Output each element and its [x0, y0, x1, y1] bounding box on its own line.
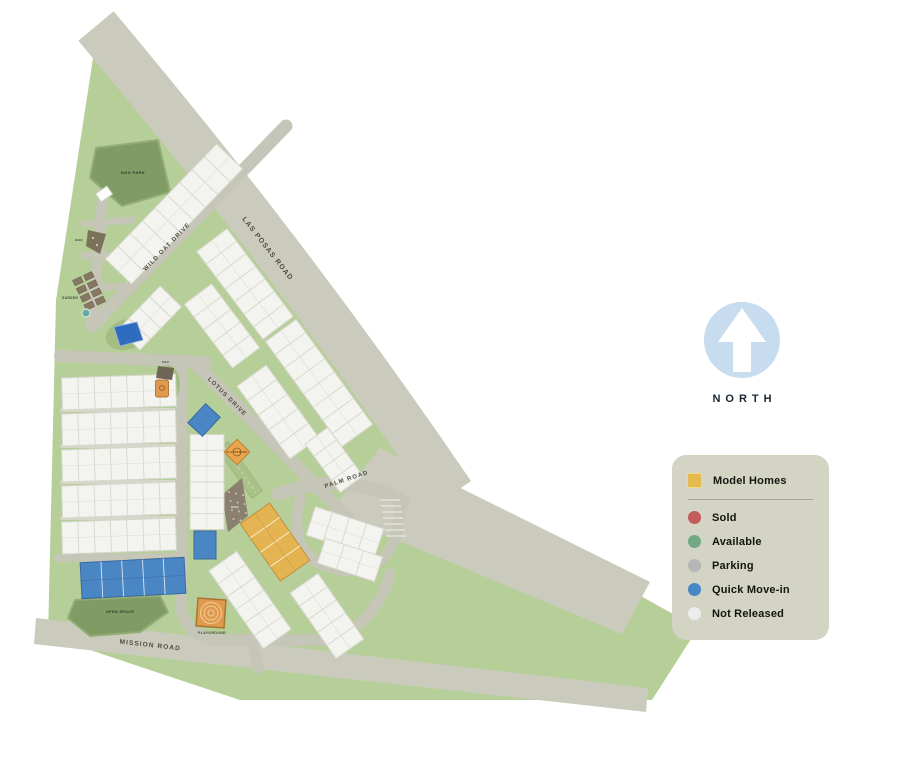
- area-label: PLAYGROUND: [198, 631, 226, 635]
- plaza-dot: [245, 512, 247, 514]
- legend-item-quick-move-in: Quick Move-in: [687, 579, 814, 600]
- plaza-dot: [233, 518, 235, 520]
- plaza-dot: [240, 520, 242, 522]
- not-released-swatch-circle-icon: [688, 607, 701, 620]
- home-building-row[interactable]: [61, 446, 176, 482]
- plaza-dot: [235, 493, 237, 495]
- plaza-dot: [237, 502, 239, 504]
- plaza-dot: [247, 521, 249, 523]
- parking-swatch-circle-icon: [688, 559, 701, 572]
- plaza-dot: [238, 511, 240, 513]
- home-building-row[interactable]: [61, 518, 176, 554]
- plaza-dot: [228, 491, 230, 493]
- legend-label: Sold: [712, 512, 737, 524]
- legend-label: Available: [712, 536, 762, 548]
- bbq-grill-dot: [96, 244, 98, 246]
- area-label: DOG PARK: [121, 170, 145, 175]
- area-label: OPEN SPACE: [106, 610, 135, 614]
- left-lower-road: [58, 557, 182, 558]
- bbq-grill-dot: [92, 237, 94, 239]
- area-label: PLAYGROUND: [227, 451, 248, 454]
- legend-label: Not Released: [712, 608, 784, 620]
- legend-item-available: Available: [687, 531, 814, 552]
- sold-swatch-circle-icon: [688, 511, 701, 524]
- north-indicator: NORTH: [698, 300, 786, 405]
- home-building-row[interactable]: [61, 482, 176, 518]
- home-building-row[interactable]: [190, 435, 224, 530]
- plaza-dot: [231, 509, 233, 511]
- legend-label: Model Homes: [713, 475, 787, 487]
- model-homes-swatch-square-icon: [687, 473, 702, 488]
- north-label: NORTH: [698, 393, 786, 405]
- playground-large: [196, 598, 226, 628]
- area-label: REC: [162, 360, 170, 364]
- legend-label: Parking: [712, 560, 754, 572]
- legend-item-not-released: Not Released: [687, 603, 814, 624]
- legend-label: Quick Move-in: [712, 584, 790, 596]
- community-site-map-page: LAS POSAS ROADWILD OAT DRIVELOTUS DRIVEP…: [0, 0, 906, 762]
- rec-shade-structure: [156, 366, 174, 380]
- quick-move-in-swatch-circle-icon: [688, 583, 701, 596]
- plaza-dot: [242, 494, 244, 496]
- map-legend: Model HomesSoldAvailableParkingQuick Mov…: [672, 455, 829, 640]
- spa: [82, 309, 90, 317]
- plaza-dot: [244, 503, 246, 505]
- legend-item-parking: Parking: [687, 555, 814, 576]
- rec-picnic-area: [156, 380, 169, 397]
- quick-move-in-building[interactable]: [194, 531, 216, 559]
- available-swatch-circle-icon: [688, 535, 701, 548]
- area-label: GARDEN: [62, 296, 79, 300]
- plaza-dot: [230, 500, 232, 502]
- legend-item-model-homes: Model Homes: [687, 469, 814, 492]
- legend-item-sold: Sold: [687, 507, 814, 528]
- legend-divider: [688, 499, 813, 500]
- area-label: BBQ: [231, 505, 239, 509]
- north-arrow: [698, 300, 786, 380]
- home-building-row[interactable]: [61, 410, 176, 446]
- area-label: BBQ: [75, 238, 83, 242]
- quick-move-in-building[interactable]: [80, 557, 186, 598]
